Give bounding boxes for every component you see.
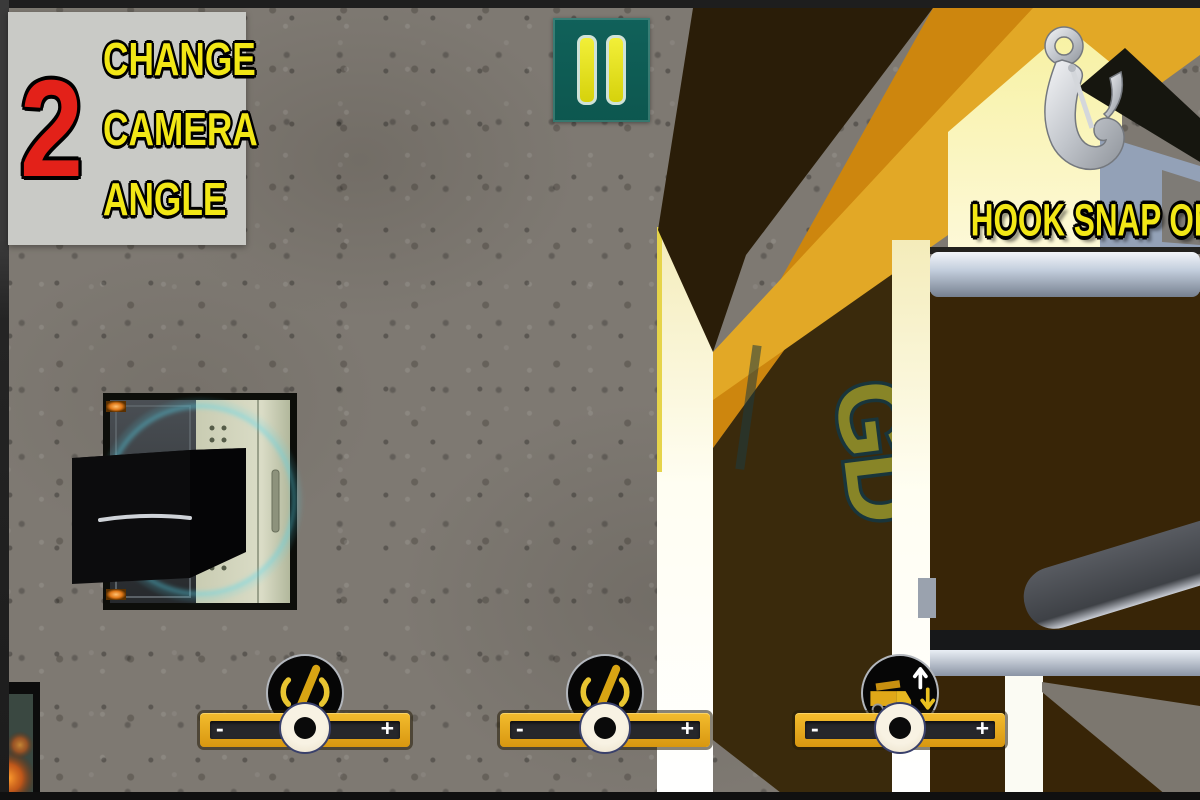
pause-icon (577, 35, 626, 105)
slider-plus-button[interactable]: + (976, 717, 989, 740)
cargo-box[interactable] (72, 448, 246, 584)
change-camera-angle-button[interactable]: 2 CHANGE CAMERA ANGLE (8, 12, 246, 245)
camera-label-line: CHANGE (103, 22, 258, 98)
slider-minus-button[interactable]: - (811, 717, 819, 740)
slider-knob[interactable] (279, 702, 331, 754)
crane-slider-1: - + (200, 654, 410, 749)
hydraulic-cylinder (930, 252, 1200, 297)
slider-minus-button[interactable]: - (216, 717, 224, 740)
crane-slider-2: - + (500, 654, 710, 749)
camera-label-line: ANGLE (103, 162, 258, 238)
platform-lamp (106, 401, 126, 412)
slider-plus-button[interactable]: + (681, 717, 694, 740)
camera-label-line: CAMERA (103, 92, 258, 168)
camera-angle-label: CHANGE CAMERA ANGLE (103, 25, 292, 235)
screen-edge-bottom (0, 792, 1200, 800)
loading-platform (72, 393, 300, 610)
truck-slider: - + (795, 654, 1005, 749)
slider-minus-button[interactable]: - (516, 717, 524, 740)
slider-knob[interactable] (874, 702, 926, 754)
slider-plus-button[interactable]: + (381, 717, 394, 740)
platform-lamp (106, 589, 126, 600)
hook-status-label: HOOK SNAP ON (971, 195, 1184, 246)
slider-knob[interactable] (579, 702, 631, 754)
pause-button[interactable] (553, 18, 650, 122)
camera-angle-number: 2 (20, 60, 83, 198)
screen-edge-top (0, 0, 1200, 8)
